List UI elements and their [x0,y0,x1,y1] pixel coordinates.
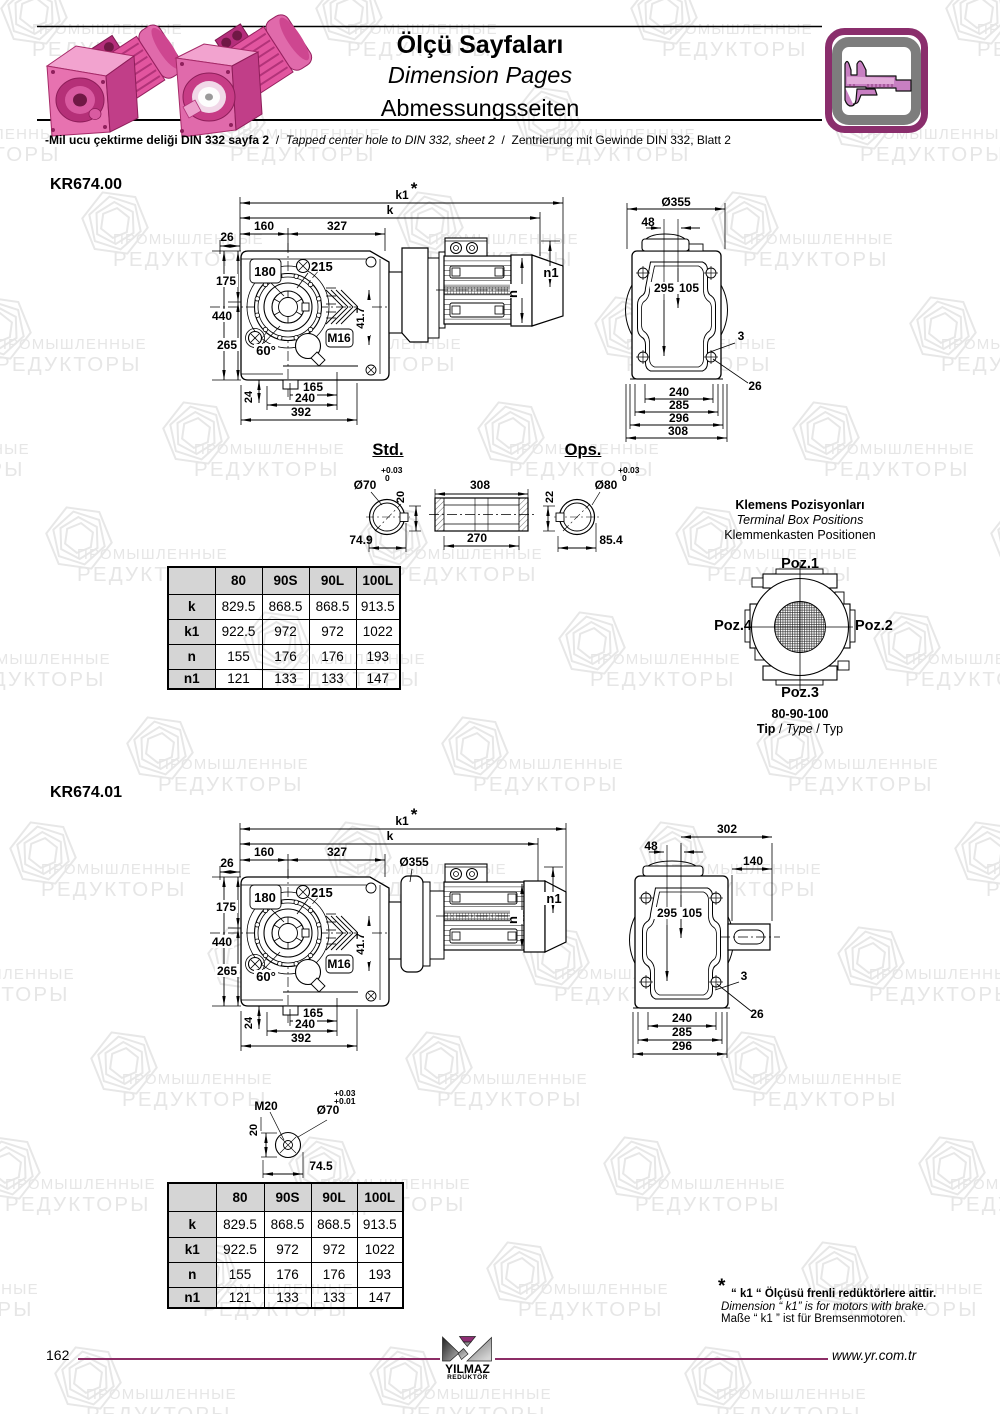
svg-text:20: 20 [248,1124,260,1136]
svg-text:296: 296 [669,411,689,425]
svg-text:327: 327 [327,845,347,859]
svg-text:175: 175 [216,274,236,288]
svg-text:60°: 60° [256,343,276,358]
svg-text:285: 285 [672,1025,692,1039]
svg-text:*: * [411,805,418,824]
svg-text:24: 24 [243,390,255,403]
svg-text:74.9: 74.9 [349,533,373,547]
svg-text:440: 440 [212,309,232,323]
svg-text:26: 26 [220,230,234,244]
svg-text:302: 302 [717,822,737,836]
svg-text:140: 140 [743,854,763,868]
svg-text:M20: M20 [254,1099,278,1113]
svg-text:41.7: 41.7 [355,307,367,328]
svg-text:3: 3 [738,329,745,343]
svg-text:k: k [387,203,394,217]
svg-text:k1: k1 [395,188,409,202]
svg-text:215: 215 [311,885,333,900]
svg-text:105: 105 [682,906,702,920]
svg-text:74.5: 74.5 [309,1159,333,1173]
svg-text:295: 295 [654,281,674,295]
svg-text:26: 26 [220,856,234,870]
svg-text:Ø355: Ø355 [399,855,429,869]
svg-text:308: 308 [668,424,688,438]
svg-text:*: * [411,179,418,198]
svg-text:26: 26 [750,1007,764,1021]
svg-text:41.7: 41.7 [355,933,367,954]
svg-text:215: 215 [311,259,333,274]
svg-text:392: 392 [291,1031,311,1045]
svg-text:22: 22 [544,491,556,503]
svg-text:295: 295 [657,906,677,920]
svg-text:Ø70: Ø70 [354,478,377,492]
svg-text:160: 160 [254,845,274,859]
svg-text:+0.01: +0.01 [334,1096,356,1106]
svg-text:285: 285 [669,398,689,412]
svg-text:M16: M16 [327,331,351,345]
svg-text:240: 240 [672,1011,692,1025]
svg-text:160: 160 [254,219,274,233]
svg-text:240: 240 [669,385,689,399]
svg-text:48: 48 [644,839,658,853]
svg-text:n1: n1 [546,891,561,906]
svg-text:M16: M16 [327,957,351,971]
svg-text:k: k [387,829,394,843]
svg-text:105: 105 [679,281,699,295]
svg-text:327: 327 [327,219,347,233]
svg-text:n1: n1 [543,265,558,280]
svg-text:Ø355: Ø355 [661,195,691,209]
svg-text:48: 48 [641,215,655,229]
svg-text:296: 296 [672,1039,692,1053]
svg-text:Ø80: Ø80 [595,478,618,492]
svg-text:24: 24 [243,1016,255,1029]
svg-text:20: 20 [395,491,407,503]
svg-text:180: 180 [254,264,276,279]
svg-text:270: 270 [467,531,487,545]
svg-text:3: 3 [741,969,748,983]
svg-text:n: n [505,916,520,924]
svg-text:240: 240 [295,391,315,405]
svg-text:26: 26 [748,379,762,393]
svg-text:n: n [505,290,520,298]
svg-text:440: 440 [212,935,232,949]
svg-text:180: 180 [254,890,276,905]
svg-text:k1: k1 [395,814,409,828]
svg-text:265: 265 [217,964,237,978]
svg-text:0: 0 [622,473,627,483]
svg-text:85.4: 85.4 [599,533,623,547]
svg-text:392: 392 [291,405,311,419]
svg-text:0: 0 [385,473,390,483]
svg-text:175: 175 [216,900,236,914]
svg-text:308: 308 [470,478,490,492]
svg-text:60°: 60° [256,969,276,984]
svg-text:240: 240 [295,1017,315,1031]
svg-text:265: 265 [217,338,237,352]
